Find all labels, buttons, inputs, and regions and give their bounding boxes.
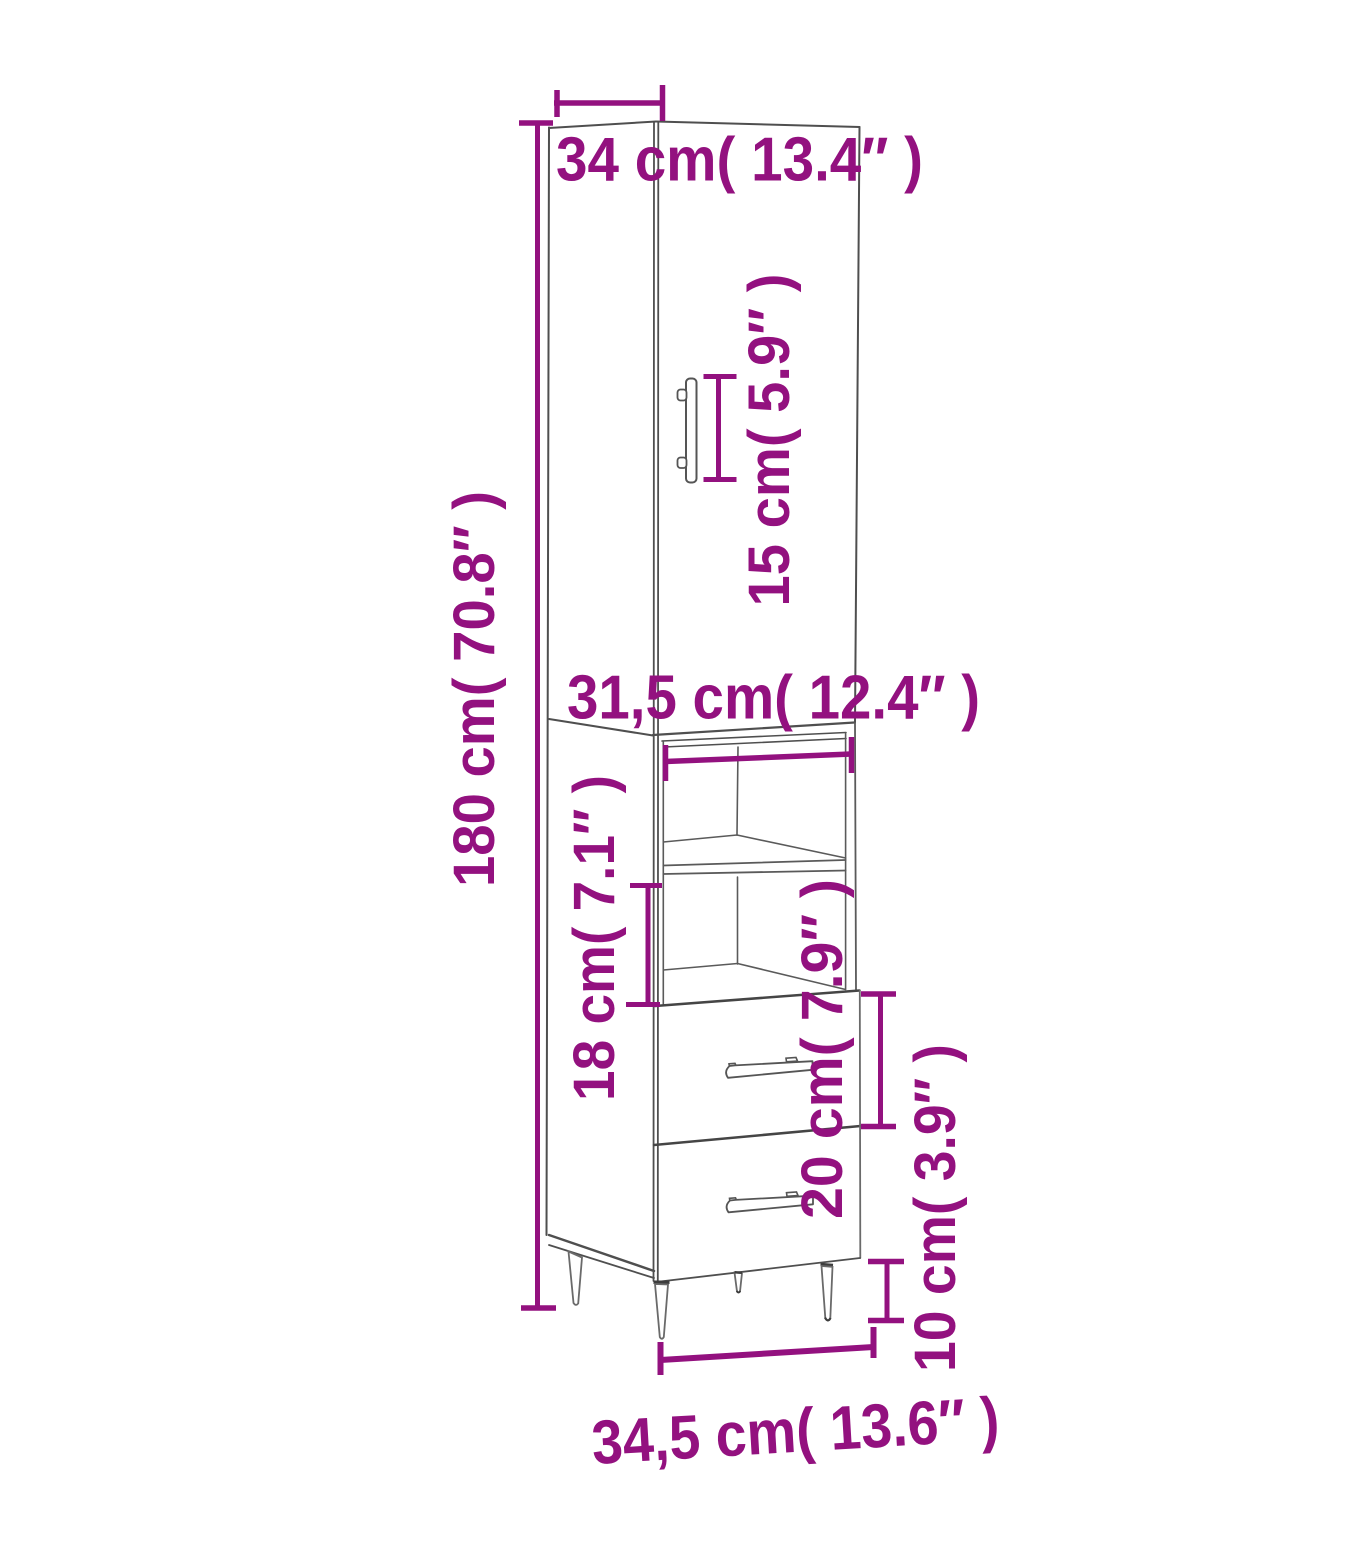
svg-text:18 cm( 7.1″ ): 18 cm( 7.1″ ) (562, 775, 627, 1101)
svg-text:20 cm( 7.9″ ): 20 cm( 7.9″ ) (790, 879, 855, 1219)
svg-text:34 cm( 13.4″ ): 34 cm( 13.4″ ) (556, 126, 923, 195)
svg-text:31,5 cm( 12.4″ ): 31,5 cm( 12.4″ ) (567, 664, 980, 733)
svg-text:180 cm( 70.8″ ): 180 cm( 70.8″ ) (442, 491, 507, 887)
svg-text:10 cm( 3.9″ ): 10 cm( 3.9″ ) (903, 1044, 968, 1372)
svg-text:15 cm( 5.9″ ): 15 cm( 5.9″ ) (737, 274, 802, 607)
